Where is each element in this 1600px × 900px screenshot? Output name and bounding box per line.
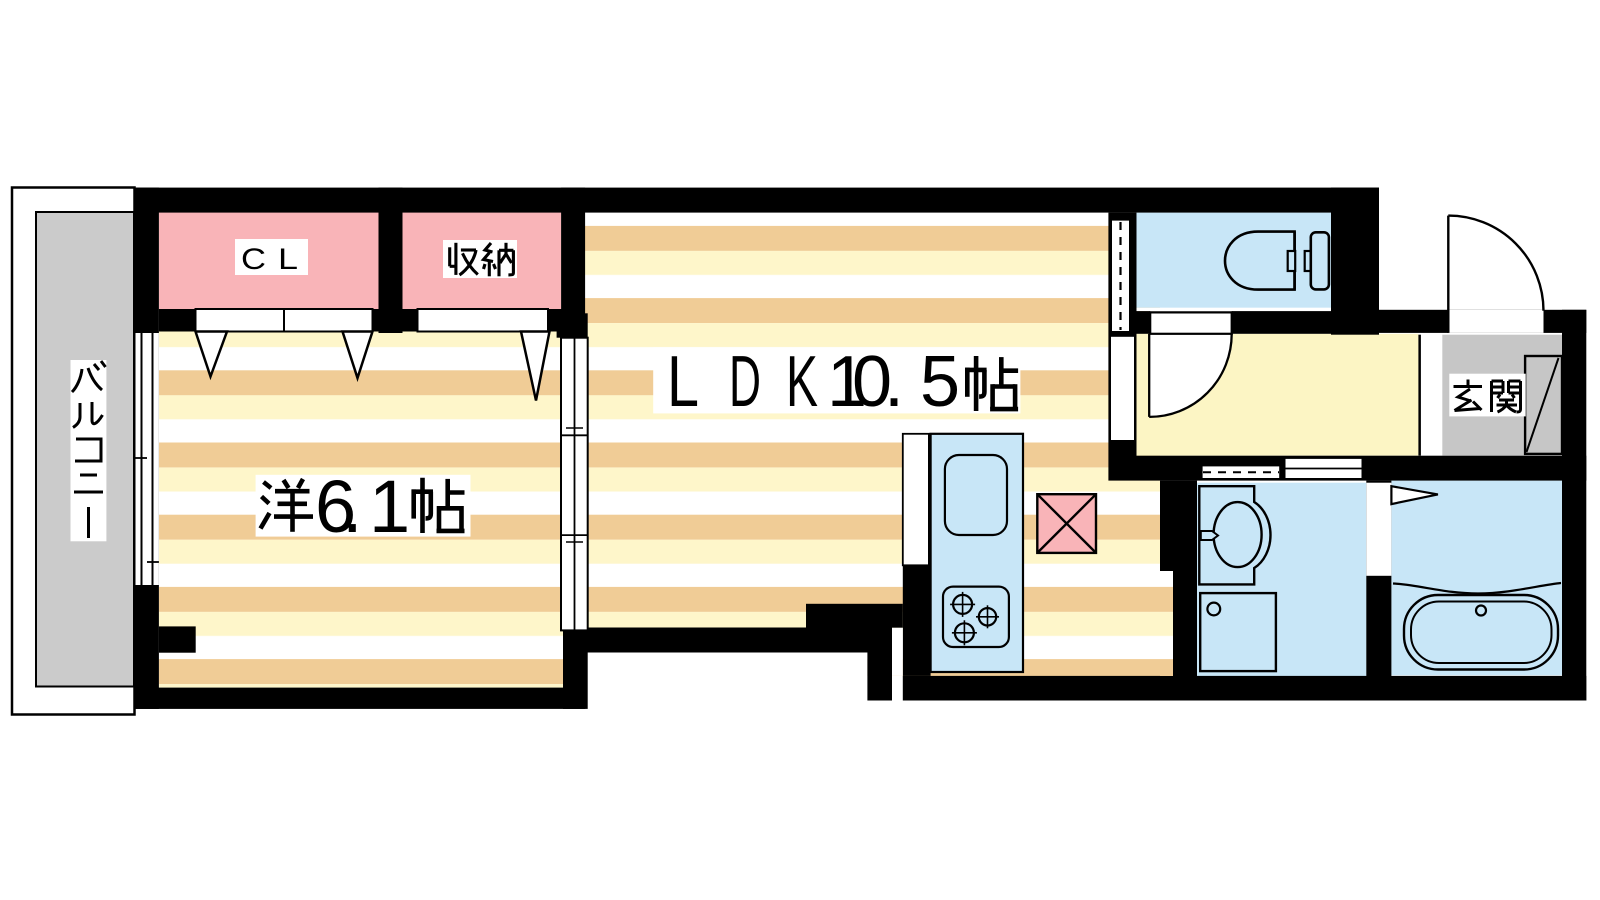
svg-text:D: D xyxy=(729,342,761,422)
svg-text:L: L xyxy=(278,243,298,276)
svg-text:C: C xyxy=(241,243,266,276)
svg-text:K: K xyxy=(786,342,818,422)
svg-text:10.5: 10.5 xyxy=(827,342,960,422)
svg-text:L: L xyxy=(667,342,699,422)
